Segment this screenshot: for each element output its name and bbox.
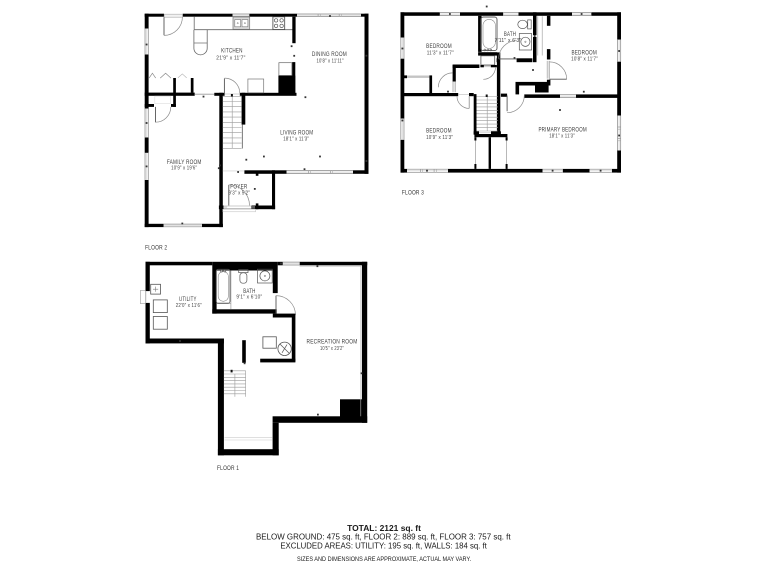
svg-text:9'3" x 5'2": 9'3" x 5'2": [229, 190, 251, 196]
svg-text:PRIMARY BEDROOM: PRIMARY BEDROOM: [538, 127, 587, 133]
svg-text:11'3" x 11'7": 11'3" x 11'7": [427, 50, 454, 56]
svg-text:DINING ROOM: DINING ROOM: [312, 52, 347, 58]
svg-text:BEDROOM: BEDROOM: [426, 44, 452, 50]
svg-text:10'8" x 11'7": 10'8" x 11'7": [571, 57, 598, 63]
svg-text:FOYER: FOYER: [230, 184, 248, 190]
svg-text:SIZES AND DIMENSIONS ARE APPRO: SIZES AND DIMENSIONS ARE APPROXIMATE, AC…: [297, 557, 471, 563]
svg-text:7'11" x 6'3": 7'11" x 6'3": [495, 38, 522, 44]
svg-text:10'9" x 19'6": 10'9" x 19'6": [171, 165, 197, 171]
svg-text:RECREATION ROOM: RECREATION ROOM: [307, 339, 358, 345]
svg-text:18'1" x 11'3": 18'1" x 11'3": [549, 134, 575, 140]
svg-text:10'8" x 11'11": 10'8" x 11'11": [317, 59, 344, 65]
svg-text:FLOOR 3: FLOOR 3: [402, 189, 424, 196]
svg-text:KITCHEN: KITCHEN: [221, 48, 243, 54]
svg-text:22'0" x 11'6": 22'0" x 11'6": [176, 303, 202, 309]
svg-text:9'1" x 6'10": 9'1" x 6'10": [236, 294, 262, 300]
svg-text:18'1" x 11'3": 18'1" x 11'3": [283, 137, 309, 143]
svg-text:FLOOR 2: FLOOR 2: [145, 245, 167, 252]
svg-text:BELOW GROUND: 475 sq. ft, FLOO: BELOW GROUND: 475 sq. ft, FLOOR 2: 889 s…: [256, 533, 511, 542]
svg-text:FLOOR 1: FLOOR 1: [217, 465, 239, 472]
svg-text:10'9" x 11'3": 10'9" x 11'3": [426, 135, 453, 141]
svg-text:EXCLUDED AREAS: UTILITY: 195 s: EXCLUDED AREAS: UTILITY: 195 sq. ft, WAL…: [280, 542, 487, 551]
svg-text:21'9" x 11'7": 21'9" x 11'7": [216, 55, 245, 61]
svg-text:10'5" x 23'2": 10'5" x 23'2": [320, 346, 344, 352]
svg-text:BEDROOM: BEDROOM: [426, 129, 452, 135]
svg-text:BEDROOM: BEDROOM: [571, 51, 597, 57]
